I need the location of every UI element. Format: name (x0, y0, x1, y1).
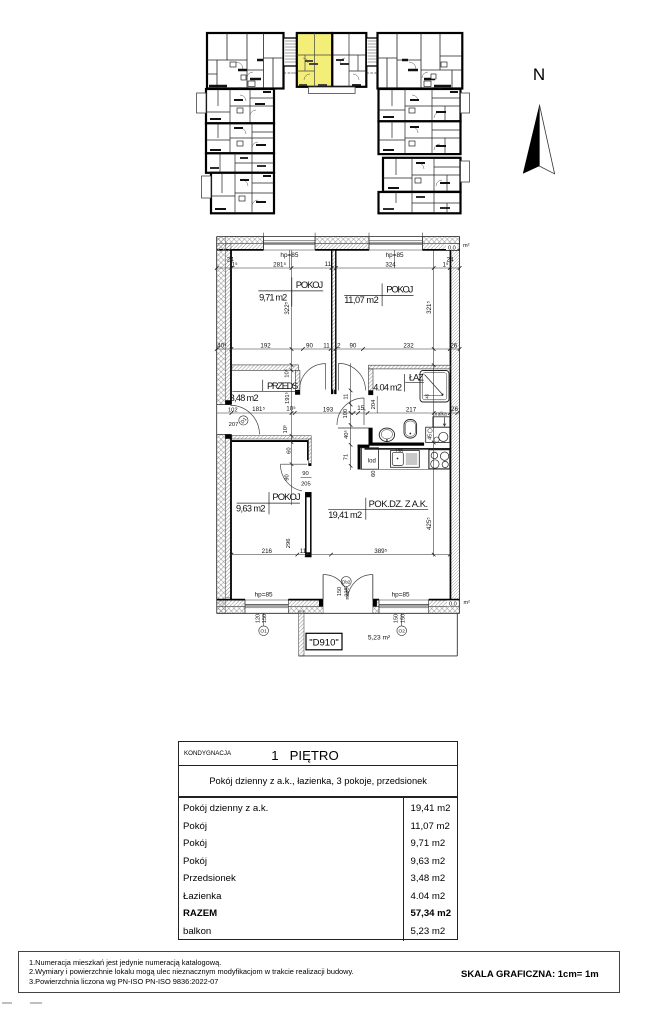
svg-text:45: 45 (425, 393, 430, 399)
svg-text:138: 138 (395, 449, 403, 454)
svg-text:205: 205 (301, 482, 311, 488)
svg-text:26: 26 (451, 406, 458, 413)
svg-text:90: 90 (285, 474, 291, 480)
svg-text:322⁵: 322⁵ (284, 301, 291, 314)
svg-text:24: 24 (447, 257, 454, 264)
svg-text:217: 217 (406, 406, 417, 413)
svg-text:lod: lod (368, 458, 376, 464)
svg-text:10⁵: 10⁵ (284, 368, 291, 377)
svg-text:10⁵: 10⁵ (286, 406, 296, 413)
svg-text:150: 150 (337, 587, 343, 596)
svg-text:60: 60 (287, 447, 293, 453)
svg-text:POK.DZ. Z A.K.: POK.DZ. Z A.K. (369, 498, 429, 509)
svg-text:ŁAZ: ŁAZ (409, 371, 424, 382)
svg-text:150: 150 (400, 614, 406, 623)
svg-text:3,48 m2: 3,48 m2 (230, 393, 259, 403)
svg-text:m²: m² (464, 600, 471, 606)
svg-text:60: 60 (371, 470, 377, 476)
svg-text:11: 11 (343, 394, 349, 400)
svg-text:2: 2 (337, 342, 341, 349)
svg-text:120: 120 (256, 614, 262, 623)
svg-text:102: 102 (228, 407, 238, 413)
svg-text:19,41 m2: 19,41 m2 (328, 510, 362, 520)
svg-text:232: 232 (403, 342, 414, 349)
svg-text:40⁵: 40⁵ (217, 342, 227, 349)
svg-text:235: 235 (344, 587, 350, 596)
svg-text:321⁵: 321⁵ (426, 301, 433, 314)
svg-text:216: 216 (262, 548, 273, 555)
svg-text:hp=85: hp=85 (386, 252, 404, 259)
svg-text:15,: 15, (357, 405, 366, 412)
svg-text:204: 204 (371, 399, 377, 409)
svg-text:90: 90 (349, 342, 356, 349)
svg-text:pralka: pralka (433, 412, 447, 418)
svg-text:Db2: Db2 (342, 580, 351, 585)
svg-text:"D910": "D910" (309, 637, 338, 648)
svg-text:PRZEDS: PRZEDS (267, 380, 298, 391)
svg-text:O1: O1 (260, 629, 267, 635)
svg-text:192: 192 (260, 342, 271, 349)
svg-text:11: 11 (323, 342, 330, 349)
svg-text:hp=85: hp=85 (280, 252, 298, 259)
svg-text:90: 90 (302, 471, 308, 477)
svg-text:150: 150 (262, 614, 268, 623)
svg-text:207: 207 (229, 422, 239, 428)
svg-text:9,63 m2: 9,63 m2 (236, 503, 266, 513)
svg-text:296: 296 (286, 539, 292, 549)
svg-text:9,71 m2: 9,71 m2 (259, 293, 287, 303)
svg-text:40⁵: 40⁵ (343, 429, 350, 438)
svg-text:150: 150 (394, 614, 400, 623)
svg-text:389⁵: 389⁵ (374, 548, 387, 555)
svg-text:hp=85: hp=85 (255, 592, 273, 599)
svg-text:10⁵: 10⁵ (282, 424, 289, 433)
svg-text:11: 11 (325, 261, 332, 268)
svg-text:O2: O2 (398, 629, 405, 635)
svg-text:0,0: 0,0 (448, 245, 456, 251)
svg-text:11: 11 (300, 548, 307, 555)
svg-text:1⁵: 1⁵ (232, 261, 238, 268)
svg-text:POKOJ: POKOJ (296, 279, 324, 290)
svg-text:71: 71 (343, 454, 349, 460)
svg-text:0,0: 0,0 (449, 602, 457, 608)
svg-text:hp=85: hp=85 (392, 592, 410, 599)
svg-text:26: 26 (450, 342, 457, 349)
svg-text:281⁵: 281⁵ (273, 262, 286, 269)
svg-text:100: 100 (343, 409, 349, 419)
svg-text:5,23 m²: 5,23 m² (368, 635, 391, 642)
svg-text:11,07 m2: 11,07 m2 (344, 295, 378, 305)
svg-text:191⁵: 191⁵ (284, 391, 291, 404)
svg-text:425⁵: 425⁵ (426, 517, 433, 530)
svg-text:4.04 m2: 4.04 m2 (373, 383, 402, 393)
svg-text:45: 45 (427, 434, 433, 440)
svg-text:324: 324 (385, 262, 396, 269)
svg-text:N: N (533, 65, 545, 84)
svg-text:POKOJ: POKOJ (386, 284, 413, 295)
svg-text:POKOJ: POKOJ (272, 491, 300, 502)
svg-text:m²: m² (463, 243, 470, 249)
svg-text:90: 90 (306, 342, 313, 349)
svg-text:193: 193 (323, 406, 334, 413)
svg-text:181⁵: 181⁵ (252, 406, 265, 413)
